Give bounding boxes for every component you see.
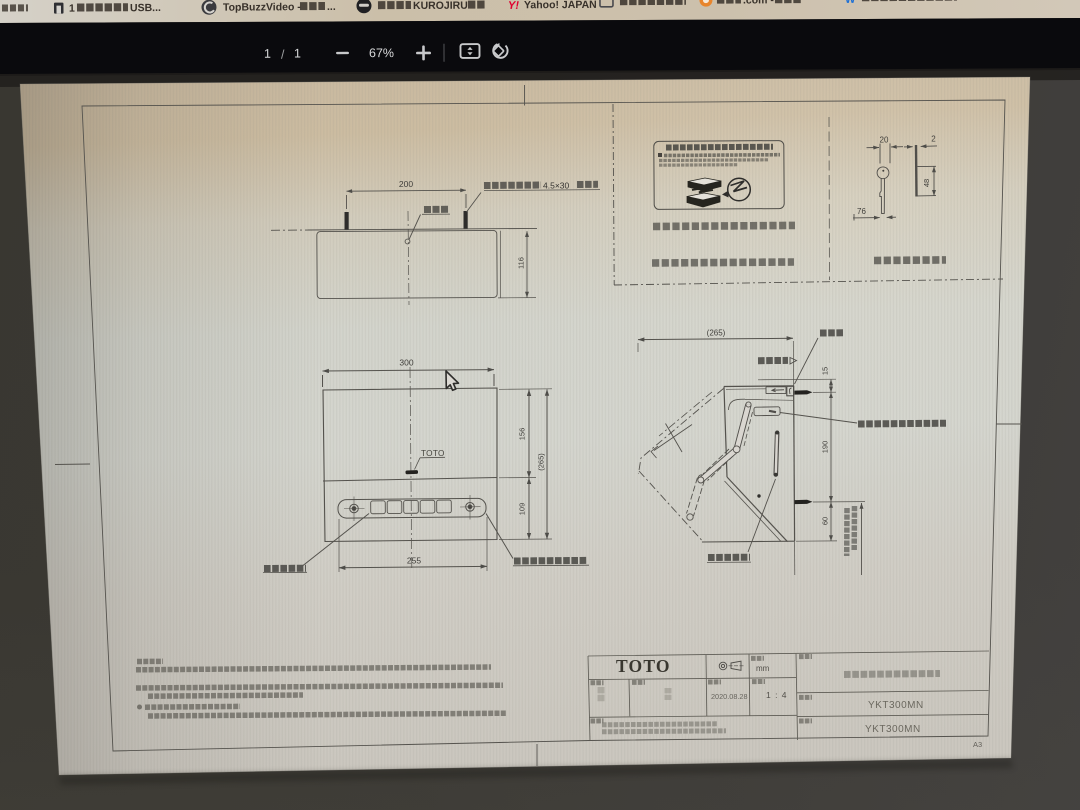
svg-text:2: 2 [931,135,936,144]
svg-text:190: 190 [821,441,830,454]
svg-text:60: 60 [821,517,830,525]
svg-text:1 : 4: 1 : 4 [766,690,788,700]
svg-text:109: 109 [518,503,527,516]
svg-text:255: 255 [407,556,421,566]
svg-text:(265): (265) [707,329,726,338]
svg-text:76: 76 [857,207,866,216]
svg-text:mm: mm [756,664,770,673]
svg-text:2020.08.28: 2020.08.28 [711,692,748,701]
svg-text:TOTO: TOTO [421,449,445,458]
svg-text:300: 300 [399,358,413,368]
svg-text:TOTO: TOTO [616,656,671,676]
svg-text:4.5×30: 4.5×30 [543,181,570,191]
svg-text:YKT300MN: YKT300MN [865,724,921,735]
svg-text:200: 200 [399,179,413,189]
svg-text:A3: A3 [973,740,982,749]
svg-text:YKT300MN: YKT300MN [868,700,924,711]
svg-text:48: 48 [922,179,931,187]
svg-text:156: 156 [518,428,527,441]
svg-text:(265): (265) [537,453,546,471]
svg-text:15: 15 [821,367,830,375]
svg-text:20: 20 [880,136,889,145]
svg-text:116: 116 [517,257,526,269]
